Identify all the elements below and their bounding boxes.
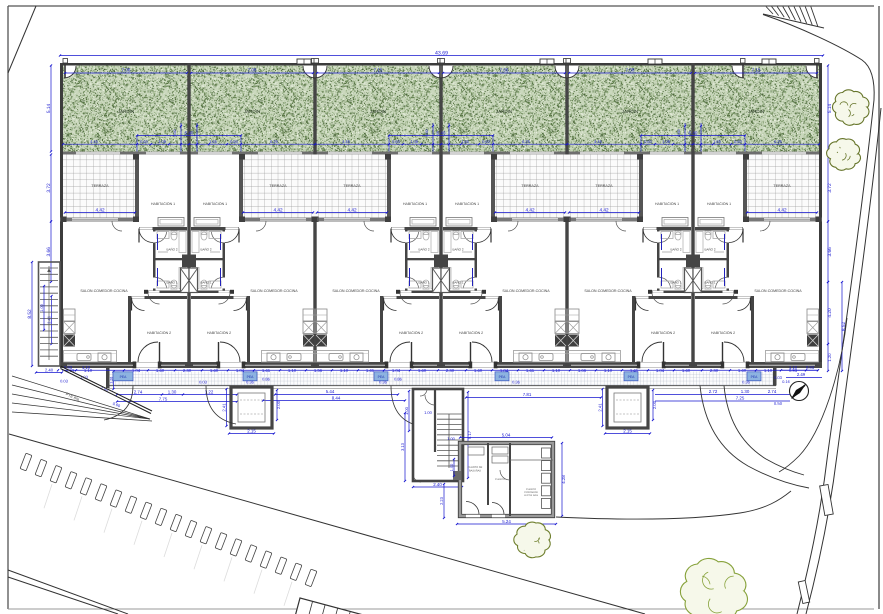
svg-text:1.10: 1.10 bbox=[340, 368, 349, 373]
svg-text:5.14: 5.14 bbox=[46, 104, 52, 114]
svg-text:6.40: 6.40 bbox=[437, 131, 446, 136]
svg-text:BAÑO 1: BAÑO 1 bbox=[704, 281, 715, 285]
svg-text:43.69: 43.69 bbox=[435, 50, 448, 56]
svg-text:1.08: 1.08 bbox=[662, 139, 671, 144]
svg-text:0.60: 0.60 bbox=[392, 139, 401, 144]
svg-text:1.66: 1.66 bbox=[578, 368, 587, 373]
svg-text:1.10: 1.10 bbox=[604, 368, 613, 373]
svg-text:BAÑO 1: BAÑO 1 bbox=[200, 281, 211, 285]
svg-text:BAÑO 2: BAÑO 2 bbox=[166, 248, 177, 252]
svg-text:0.60: 0.60 bbox=[677, 130, 681, 137]
svg-text:0.60: 0.60 bbox=[644, 139, 653, 144]
svg-text:SALON-COMEDOR-COCINA: SALON-COMEDOR-COCINA bbox=[754, 289, 802, 293]
svg-text:1.41: 1.41 bbox=[526, 368, 535, 373]
svg-text:7.06: 7.06 bbox=[500, 68, 509, 73]
svg-text:TERRAZA: TERRAZA bbox=[595, 184, 613, 188]
svg-text:HABITACION 2: HABITACION 2 bbox=[459, 331, 483, 335]
svg-text:6.40: 6.40 bbox=[689, 131, 698, 136]
svg-text:7.25: 7.25 bbox=[736, 396, 745, 401]
svg-text:TERRAZA: TERRAZA bbox=[773, 184, 791, 188]
svg-text:0.60: 0.60 bbox=[230, 139, 239, 144]
svg-text:BAÑO 2: BAÑO 2 bbox=[452, 248, 463, 252]
svg-text:JARDIN: JARDIN bbox=[622, 109, 638, 114]
svg-text:1.65: 1.65 bbox=[461, 139, 470, 144]
svg-text:2.74: 2.74 bbox=[134, 389, 143, 394]
svg-text:0.60: 0.60 bbox=[425, 130, 429, 137]
svg-text:BAÑO 1: BAÑO 1 bbox=[452, 281, 463, 285]
svg-text:0.36: 0.36 bbox=[246, 380, 255, 385]
svg-text:TERRAZA: TERRAZA bbox=[91, 184, 109, 188]
svg-text:TERRAZA: TERRAZA bbox=[343, 184, 361, 188]
svg-text:7.08: 7.08 bbox=[248, 68, 257, 73]
svg-text:1.40: 1.40 bbox=[474, 368, 483, 373]
svg-text:SALON-COMEDOR-COCINA: SALON-COMEDOR-COCINA bbox=[502, 289, 550, 293]
svg-text:HABITACION 1: HABITACION 1 bbox=[707, 202, 731, 206]
svg-text:4.42: 4.42 bbox=[95, 207, 105, 212]
svg-text:6.40: 6.40 bbox=[185, 131, 194, 136]
svg-text:2.30: 2.30 bbox=[183, 368, 192, 373]
svg-text:0.36: 0.36 bbox=[742, 380, 751, 385]
svg-text:HABITACION 1: HABITACION 1 bbox=[203, 202, 227, 206]
svg-text:SALON-COMEDOR-COCINA: SALON-COMEDOR-COCINA bbox=[80, 289, 128, 293]
svg-text:1.40: 1.40 bbox=[738, 368, 747, 373]
svg-text:1.04: 1.04 bbox=[236, 368, 245, 373]
svg-text:7.08: 7.08 bbox=[626, 68, 635, 73]
svg-text:2.72: 2.72 bbox=[709, 389, 718, 394]
svg-text:PEA: PEA bbox=[628, 375, 636, 379]
svg-text:1.40: 1.40 bbox=[418, 368, 427, 373]
svg-text:HABITACION 1: HABITACION 1 bbox=[455, 202, 479, 206]
svg-text:4.20: 4.20 bbox=[827, 308, 833, 318]
svg-text:JARDIN: JARDIN bbox=[244, 109, 260, 114]
svg-text:1.04: 1.04 bbox=[392, 368, 401, 373]
svg-text:1.10: 1.10 bbox=[288, 368, 297, 373]
svg-text:0.60: 0.60 bbox=[140, 139, 149, 144]
svg-text:3.66: 3.66 bbox=[827, 247, 833, 257]
svg-text:3.72: 3.72 bbox=[46, 183, 52, 193]
svg-text:1.30: 1.30 bbox=[741, 389, 750, 394]
svg-text:1.41: 1.41 bbox=[630, 368, 639, 373]
svg-text:JARDIN: JARDIN bbox=[496, 109, 512, 114]
svg-text:4.42: 4.42 bbox=[273, 207, 283, 212]
svg-text:4.42: 4.42 bbox=[525, 207, 535, 212]
svg-text:PEA: PEA bbox=[247, 375, 255, 379]
svg-text:5.44: 5.44 bbox=[326, 389, 335, 394]
svg-text:JARDIN: JARDIN bbox=[748, 109, 764, 114]
svg-text:4.45: 4.45 bbox=[90, 139, 99, 144]
svg-text:SALON-COMEDOR-COCINA: SALON-COMEDOR-COCINA bbox=[584, 289, 632, 293]
svg-text:SALON-COMEDOR-COCINA: SALON-COMEDOR-COCINA bbox=[332, 289, 380, 293]
svg-text:1.04: 1.04 bbox=[656, 368, 665, 373]
svg-text:8.44: 8.44 bbox=[332, 395, 341, 400]
svg-text:PEA: PEA bbox=[751, 375, 759, 379]
svg-text:1.40: 1.40 bbox=[156, 368, 165, 373]
svg-text:2.30: 2.30 bbox=[446, 368, 455, 373]
svg-text:6.25: 6.25 bbox=[270, 139, 279, 144]
svg-text:HABITACION 1: HABITACION 1 bbox=[655, 202, 679, 206]
svg-text:0.60: 0.60 bbox=[482, 139, 491, 144]
svg-text:HABITACION 1: HABITACION 1 bbox=[403, 202, 427, 206]
svg-text:8.52: 8.52 bbox=[27, 309, 33, 319]
svg-text:1.08: 1.08 bbox=[158, 139, 167, 144]
svg-text:TERRAZA: TERRAZA bbox=[269, 184, 287, 188]
svg-text:0.86: 0.86 bbox=[394, 377, 403, 382]
svg-text:BAÑO 2: BAÑO 2 bbox=[418, 248, 429, 252]
svg-text:2.30: 2.30 bbox=[710, 368, 719, 373]
svg-text:PEA: PEA bbox=[378, 375, 386, 379]
svg-text:BAÑO 2: BAÑO 2 bbox=[704, 248, 715, 252]
svg-text:BAÑO 1: BAÑO 1 bbox=[418, 281, 429, 285]
svg-text:1.65: 1.65 bbox=[713, 139, 722, 144]
svg-text:0.03: 0.03 bbox=[199, 380, 208, 385]
svg-text:BAÑO 2: BAÑO 2 bbox=[200, 248, 211, 252]
svg-text:1.56: 1.56 bbox=[314, 368, 323, 373]
svg-text:SALON-COMEDOR-COCINA: SALON-COMEDOR-COCINA bbox=[250, 289, 298, 293]
svg-text:HABITACION 2: HABITACION 2 bbox=[399, 331, 423, 335]
svg-text:JARDIN: JARDIN bbox=[118, 109, 134, 114]
svg-text:4.45: 4.45 bbox=[342, 139, 351, 144]
svg-text:1.40: 1.40 bbox=[210, 368, 219, 373]
svg-text:1.10: 1.10 bbox=[552, 368, 561, 373]
svg-text:4.45: 4.45 bbox=[594, 139, 603, 144]
svg-text:7.15: 7.15 bbox=[752, 68, 761, 73]
svg-text:6.25: 6.25 bbox=[522, 139, 531, 144]
svg-text:1.41: 1.41 bbox=[366, 368, 375, 373]
svg-text:0.36: 0.36 bbox=[512, 380, 521, 385]
svg-text:1.41: 1.41 bbox=[262, 368, 271, 373]
svg-text:1.10: 1.10 bbox=[764, 368, 773, 373]
svg-text:2.74: 2.74 bbox=[768, 389, 777, 394]
svg-text:HABITACION 2: HABITACION 2 bbox=[651, 331, 675, 335]
svg-text:7.75: 7.75 bbox=[159, 396, 168, 401]
svg-text:0.60: 0.60 bbox=[173, 130, 177, 137]
svg-text:3.72: 3.72 bbox=[827, 183, 833, 193]
svg-text:HABITACION 2: HABITACION 2 bbox=[711, 331, 735, 335]
svg-text:1.40: 1.40 bbox=[682, 368, 691, 373]
svg-text:HABITACION 2: HABITACION 2 bbox=[207, 331, 231, 335]
svg-text:TERRAZA: TERRAZA bbox=[521, 184, 539, 188]
svg-text:HABITACION 2: HABITACION 2 bbox=[147, 331, 171, 335]
svg-text:HABITACION 1: HABITACION 1 bbox=[151, 202, 175, 206]
svg-text:BAÑO 1: BAÑO 1 bbox=[670, 281, 681, 285]
svg-text:0.03: 0.03 bbox=[60, 379, 69, 384]
svg-text:1.08: 1.08 bbox=[410, 139, 419, 144]
svg-text:1.04: 1.04 bbox=[132, 368, 141, 373]
svg-text:3.66: 3.66 bbox=[46, 247, 52, 257]
svg-text:0.36: 0.36 bbox=[379, 380, 388, 385]
svg-text:1.20: 1.20 bbox=[827, 353, 832, 362]
svg-text:0.50: 0.50 bbox=[774, 401, 783, 406]
svg-text:1.65: 1.65 bbox=[209, 139, 218, 144]
svg-text:1.30: 1.30 bbox=[168, 389, 177, 394]
svg-text:PEA: PEA bbox=[120, 375, 128, 379]
svg-text:4.42: 4.42 bbox=[599, 207, 609, 212]
svg-text:PEA: PEA bbox=[499, 375, 507, 379]
svg-text:JARDIN: JARDIN bbox=[370, 109, 386, 114]
svg-text:7.06: 7.06 bbox=[122, 68, 131, 73]
svg-text:6.25: 6.25 bbox=[774, 139, 783, 144]
svg-text:BAÑO 2: BAÑO 2 bbox=[670, 248, 681, 252]
svg-text:4.42: 4.42 bbox=[347, 207, 357, 212]
svg-text:BAÑO 1: BAÑO 1 bbox=[166, 281, 177, 285]
svg-text:0.60: 0.60 bbox=[734, 139, 743, 144]
svg-text:7.15: 7.15 bbox=[374, 68, 383, 73]
svg-text:1.04: 1.04 bbox=[500, 368, 509, 373]
svg-text:7.81: 7.81 bbox=[523, 392, 532, 397]
svg-text:0.86: 0.86 bbox=[262, 377, 271, 382]
svg-text:4.42: 4.42 bbox=[777, 207, 787, 212]
